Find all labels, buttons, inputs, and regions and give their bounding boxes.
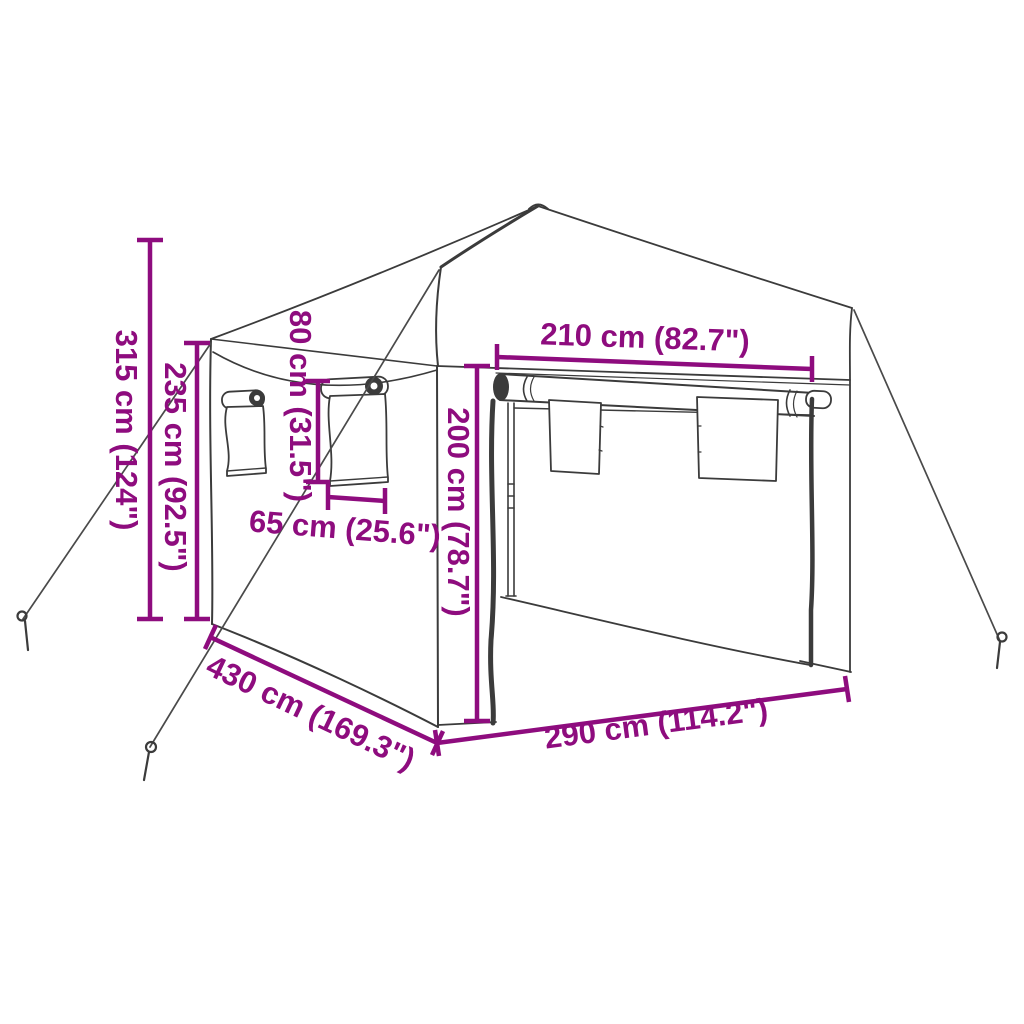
rolled-up-door bbox=[493, 373, 831, 417]
dim-label-opening-height: 200 cm (78.7") bbox=[441, 407, 476, 616]
side-window-front bbox=[321, 376, 389, 486]
front-bottom-right-strip bbox=[800, 661, 851, 672]
dim-label-total-height: 315 cm (124") bbox=[109, 330, 144, 531]
front-left-pole bbox=[491, 401, 494, 723]
door-roll-band-right-1 bbox=[787, 390, 791, 416]
left-wall-back-edge bbox=[210, 339, 212, 624]
roof-front-left-corner-edge bbox=[436, 267, 441, 366]
dim-label-wall-height: 235 cm (92.5") bbox=[158, 362, 193, 571]
roller-cap-rear-hub bbox=[254, 395, 260, 401]
interior-window-right bbox=[697, 397, 778, 481]
stake-right bbox=[997, 633, 1007, 669]
roof-left-ridge bbox=[211, 206, 538, 339]
roller-cap-front-hub bbox=[371, 383, 378, 390]
inner-adjustable-pole bbox=[506, 403, 516, 596]
tent-diagram-svg: 315 cm (124") 235 cm (92.5") 80 cm (31.5… bbox=[0, 0, 1024, 1024]
dim-label-window-width: 65 cm (25.6") bbox=[248, 504, 442, 554]
dim-label-front-width: 290 cm (114.2") bbox=[542, 691, 770, 755]
window-curtain-front bbox=[329, 394, 388, 486]
roof-right-corner-edge bbox=[850, 308, 852, 672]
dim-label-window-height: 80 cm (31.5") bbox=[283, 310, 318, 502]
stake-back-left bbox=[18, 612, 29, 651]
guy-rope-right bbox=[854, 310, 1000, 641]
side-window-rear bbox=[222, 390, 266, 476]
window-curtain-rear bbox=[225, 406, 266, 476]
door-roll-right-tip bbox=[806, 390, 832, 408]
door-roll-band-right-2 bbox=[794, 391, 798, 417]
roof-left-eave bbox=[211, 339, 437, 366]
ground-stakes bbox=[18, 612, 1007, 781]
interior-floor-edge bbox=[501, 597, 810, 665]
front-right-pole bbox=[811, 399, 812, 665]
dimension-diagram: 315 cm (124") 235 cm (92.5") 80 cm (31.5… bbox=[0, 0, 1024, 1024]
door-roll-left-cap bbox=[493, 373, 509, 401]
door-roll-band-left-2 bbox=[531, 377, 535, 401]
dimension-labels: 315 cm (124") 235 cm (92.5") 80 cm (31.5… bbox=[109, 310, 770, 777]
interior-window-left bbox=[549, 400, 601, 474]
dim-label-door-width: 210 cm (82.7") bbox=[540, 316, 751, 358]
tent-interior bbox=[501, 397, 812, 665]
roof-front-left-ridge bbox=[441, 206, 538, 267]
dim-label-side-length: 430 cm (169.3") bbox=[201, 648, 421, 777]
door-roll-band-left-1 bbox=[524, 377, 528, 401]
roof-right-ridge bbox=[538, 206, 852, 308]
